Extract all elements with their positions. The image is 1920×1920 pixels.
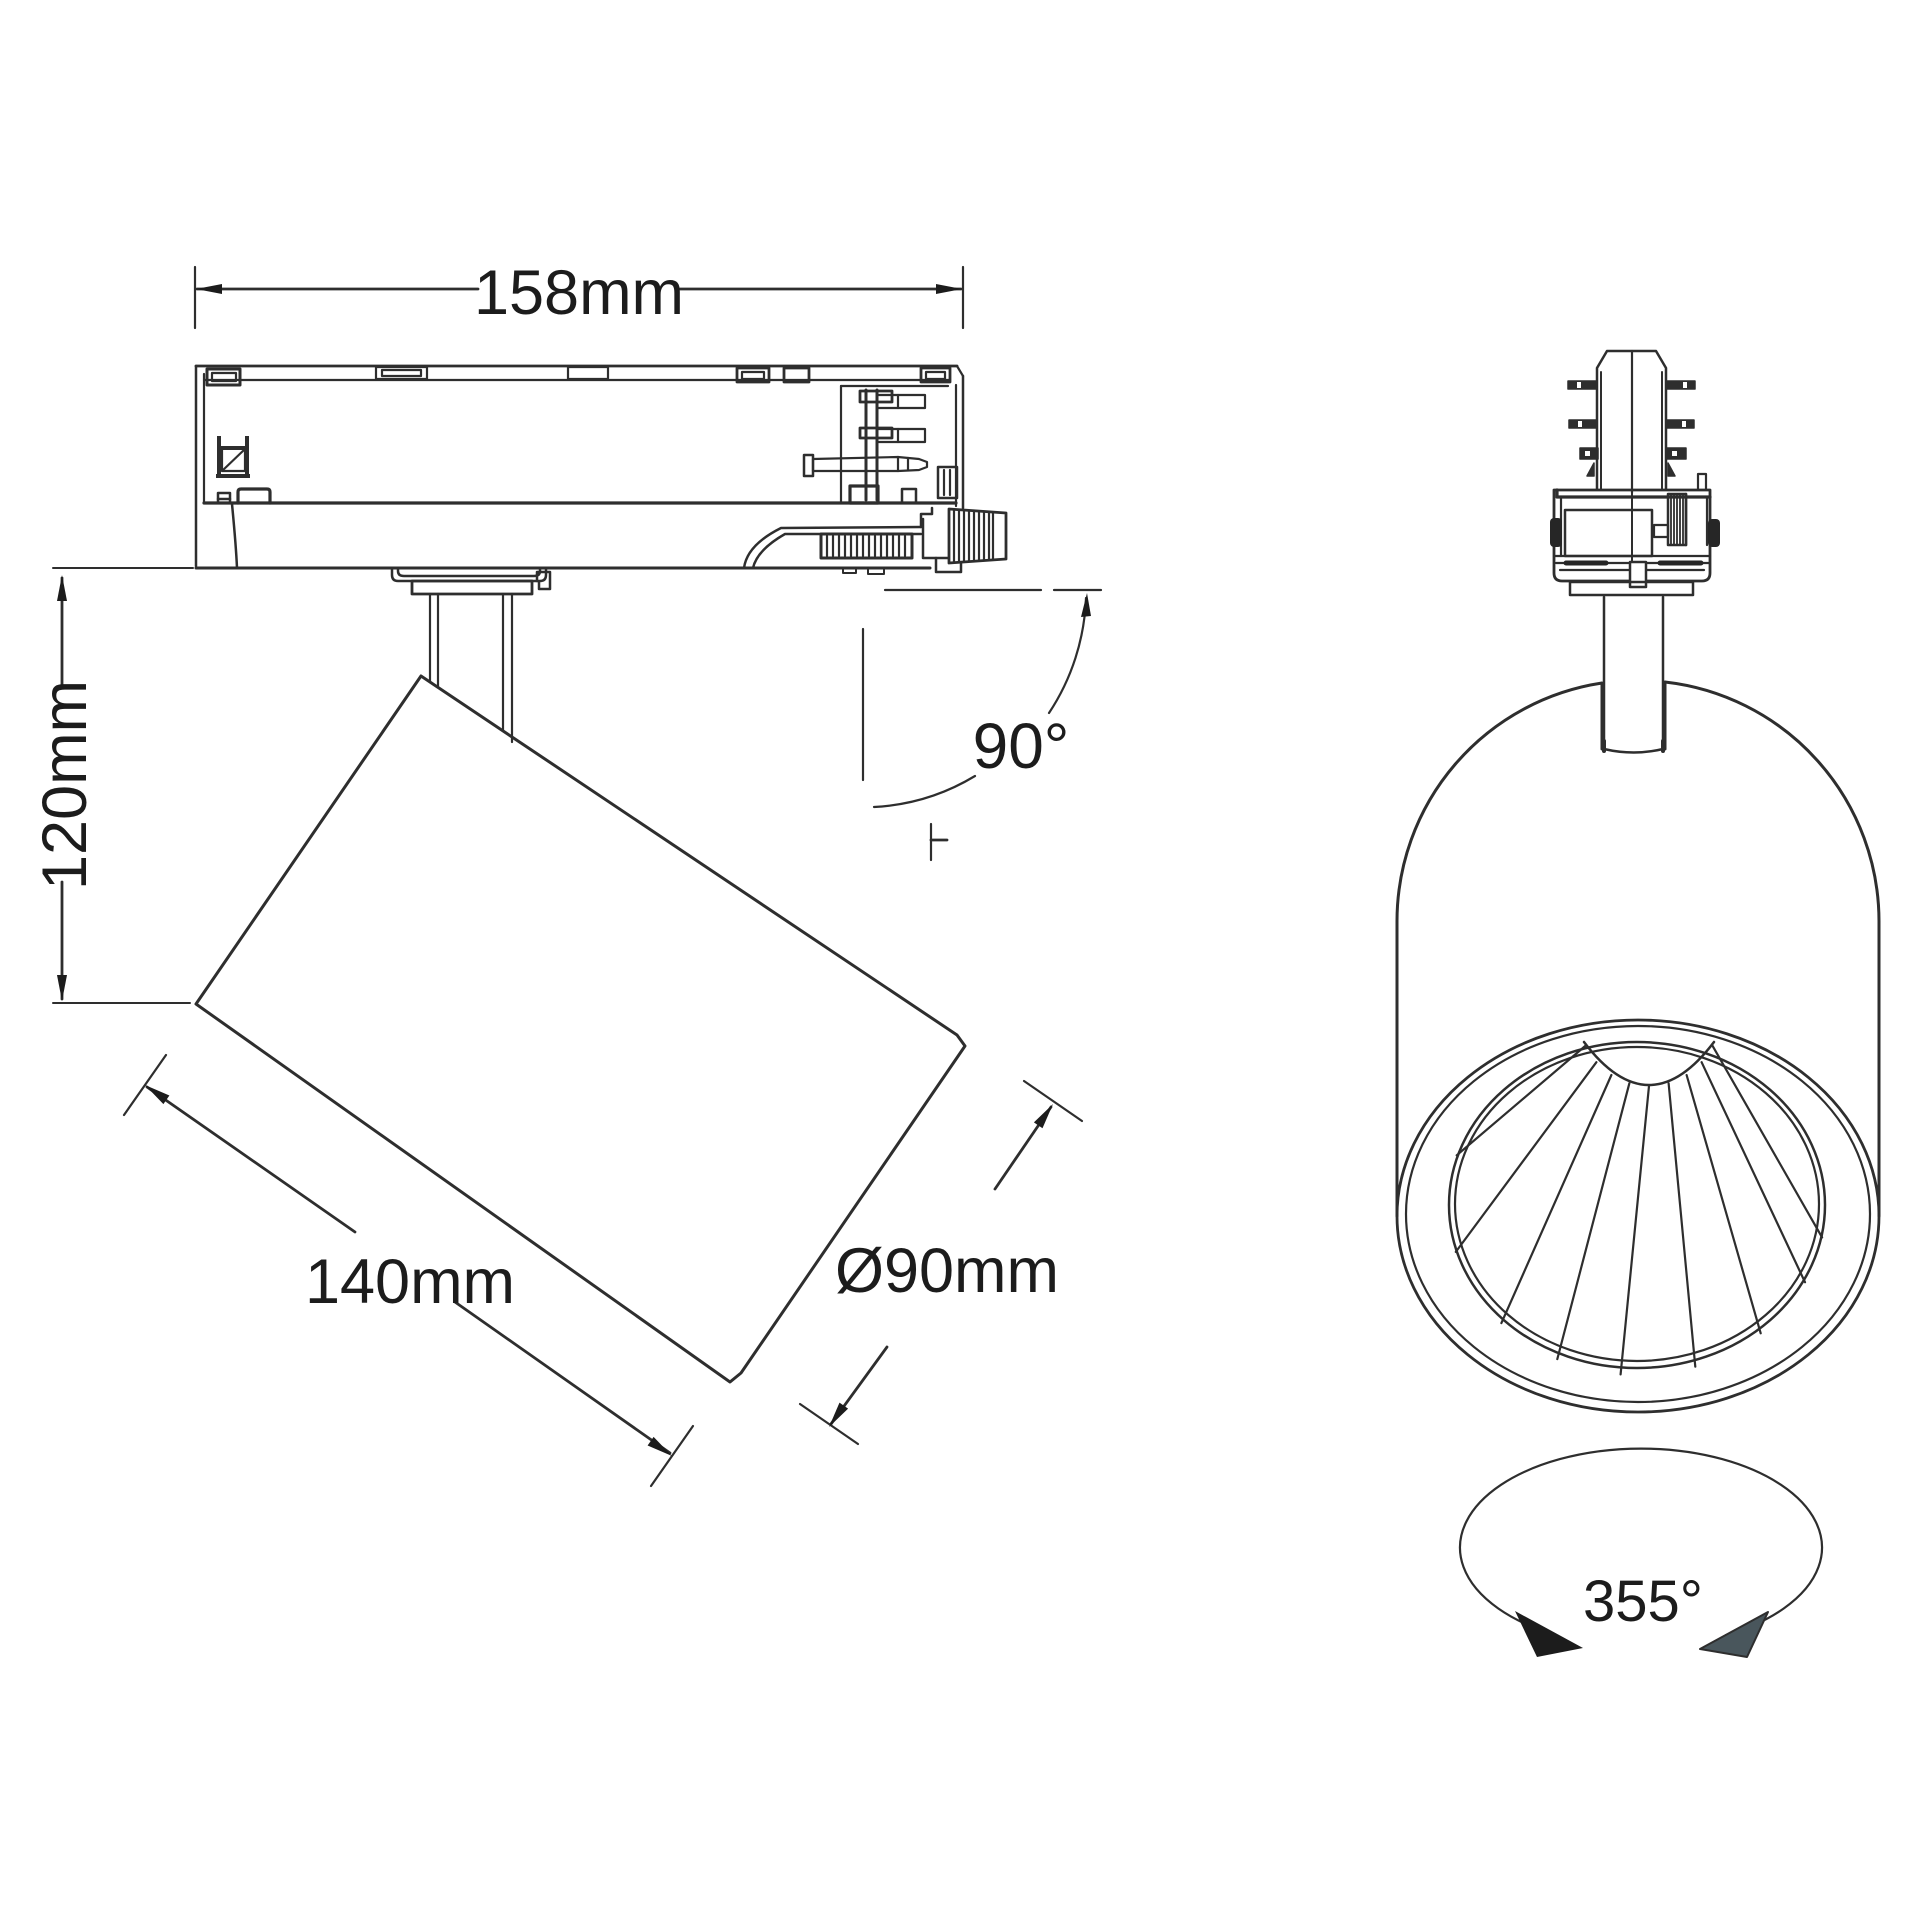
svg-text:355°: 355° [1583,1569,1703,1634]
svg-text:140mm: 140mm [305,1247,515,1317]
svg-text:90°: 90° [973,710,1070,782]
svg-text:Ø90mm: Ø90mm [835,1236,1059,1306]
svg-text:158mm: 158mm [474,258,684,328]
svg-text:120mm: 120mm [30,680,100,890]
